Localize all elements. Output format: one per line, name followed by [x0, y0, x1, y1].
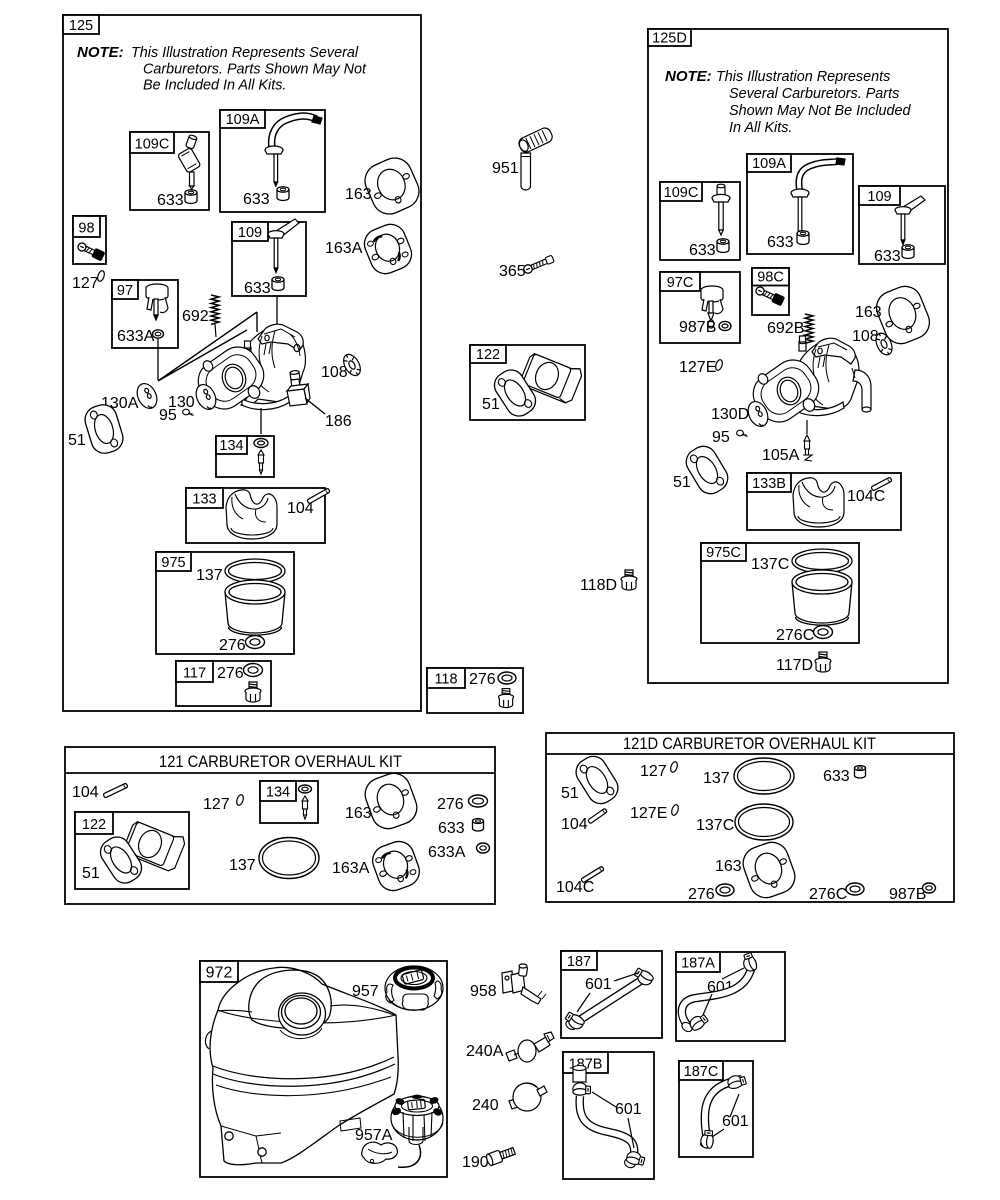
svg-text:51: 51 — [482, 396, 500, 413]
svg-text:51: 51 — [561, 785, 579, 802]
svg-text:951: 951 — [492, 160, 519, 177]
svg-text:109: 109 — [867, 189, 891, 205]
svg-text:633: 633 — [244, 280, 271, 297]
svg-text:104: 104 — [72, 784, 99, 801]
svg-text:108: 108 — [321, 364, 348, 381]
svg-text:137: 137 — [703, 770, 730, 787]
svg-text:137: 137 — [229, 857, 256, 874]
svg-text:Shown May Not Be Included: Shown May Not Be Included — [729, 103, 911, 119]
svg-text:975: 975 — [161, 555, 185, 571]
svg-text:163A: 163A — [325, 240, 363, 257]
svg-text:692: 692 — [182, 308, 209, 325]
svg-text:186: 186 — [325, 413, 352, 430]
svg-text:109C: 109C — [664, 185, 699, 201]
svg-text:125: 125 — [69, 18, 93, 34]
svg-text:130D: 130D — [711, 406, 749, 423]
svg-text:633: 633 — [874, 248, 901, 265]
svg-text:276: 276 — [217, 665, 244, 682]
svg-text:Several Carburetors. Parts: Several Carburetors. Parts — [729, 86, 900, 102]
svg-text:240: 240 — [472, 1097, 499, 1114]
svg-text:972: 972 — [206, 964, 233, 981]
svg-text:163A: 163A — [332, 860, 370, 877]
svg-text:365: 365 — [499, 263, 526, 280]
svg-text:127: 127 — [640, 763, 667, 780]
svg-text:95: 95 — [712, 429, 730, 446]
svg-text:51: 51 — [82, 865, 100, 882]
svg-text:633: 633 — [157, 192, 184, 209]
svg-text:276: 276 — [688, 886, 715, 903]
svg-text:187C: 187C — [684, 1064, 719, 1080]
svg-text:118: 118 — [434, 672, 457, 688]
svg-text:163: 163 — [855, 304, 882, 321]
svg-text:127: 127 — [203, 796, 230, 813]
svg-text:987B: 987B — [679, 319, 716, 336]
svg-text:137C: 137C — [696, 817, 734, 834]
svg-text:104C: 104C — [847, 488, 885, 505]
svg-text:134: 134 — [219, 438, 243, 454]
svg-text:240A: 240A — [466, 1043, 504, 1060]
svg-text:276C: 276C — [776, 627, 814, 644]
svg-text:163: 163 — [345, 186, 372, 203]
svg-text:957A: 957A — [355, 1127, 393, 1144]
svg-text:187: 187 — [567, 954, 591, 970]
svg-text:127E: 127E — [630, 805, 667, 822]
svg-text:137C: 137C — [751, 556, 789, 573]
svg-text:134: 134 — [266, 785, 290, 801]
svg-text:133B: 133B — [752, 476, 786, 492]
svg-text:692B: 692B — [767, 320, 804, 337]
svg-text:276: 276 — [469, 671, 496, 688]
svg-text:97: 97 — [117, 283, 133, 299]
svg-text:601: 601 — [722, 1113, 749, 1130]
svg-text:125D: 125D — [652, 30, 687, 46]
svg-text:276: 276 — [219, 637, 246, 654]
svg-text:NOTE:: NOTE: — [77, 44, 124, 61]
svg-text:109A: 109A — [226, 112, 260, 128]
svg-text:121D CARBURETOR OVERHAUL KIT: 121D CARBURETOR OVERHAUL KIT — [623, 734, 876, 753]
svg-text:117D: 117D — [776, 657, 813, 674]
svg-text:This Illustration Represents: This Illustration Represents — [716, 69, 891, 85]
svg-text:127: 127 — [72, 275, 99, 292]
svg-text:109A: 109A — [752, 156, 786, 172]
svg-text:121 CARBURETOR OVERHAUL KIT: 121 CARBURETOR OVERHAUL KIT — [159, 752, 402, 771]
svg-text:190: 190 — [462, 1154, 489, 1171]
svg-text:122: 122 — [82, 817, 106, 833]
svg-text:975C: 975C — [706, 545, 741, 561]
svg-text:109: 109 — [238, 225, 262, 241]
svg-text:137: 137 — [196, 567, 223, 584]
svg-text:This Illustration Represents S: This Illustration Represents Several — [131, 45, 359, 61]
svg-text:633: 633 — [823, 768, 850, 785]
svg-text:Be Included In All Kits.: Be Included In All Kits. — [143, 77, 286, 93]
svg-text:104C: 104C — [556, 879, 594, 896]
svg-text:958: 958 — [470, 983, 497, 1000]
svg-text:Carburetors. Parts Shown May N: Carburetors. Parts Shown May Not — [143, 61, 367, 77]
svg-text:633A: 633A — [117, 328, 155, 345]
svg-text:601: 601 — [615, 1101, 642, 1118]
svg-text:In All Kits.: In All Kits. — [729, 120, 792, 136]
svg-text:633: 633 — [438, 820, 465, 837]
svg-text:127E: 127E — [679, 359, 716, 376]
svg-text:98C: 98C — [757, 270, 784, 286]
svg-text:108: 108 — [852, 328, 879, 345]
svg-text:NOTE:: NOTE: — [665, 68, 712, 85]
svg-text:51: 51 — [673, 474, 691, 491]
svg-text:118D: 118D — [580, 577, 617, 594]
svg-text:105A: 105A — [762, 447, 800, 464]
svg-text:276: 276 — [437, 796, 464, 813]
svg-text:187A: 187A — [681, 956, 715, 972]
svg-text:104: 104 — [561, 816, 588, 833]
svg-text:98: 98 — [78, 220, 94, 236]
svg-text:601: 601 — [585, 976, 612, 993]
svg-text:633: 633 — [243, 191, 270, 208]
svg-text:122: 122 — [476, 347, 500, 363]
svg-text:987B: 987B — [889, 886, 926, 903]
svg-text:117: 117 — [183, 665, 206, 681]
svg-text:97C: 97C — [667, 275, 694, 291]
svg-text:163: 163 — [345, 805, 372, 822]
svg-text:633: 633 — [689, 242, 716, 259]
svg-text:109C: 109C — [135, 136, 170, 152]
svg-text:276C: 276C — [809, 886, 847, 903]
svg-text:95: 95 — [159, 407, 177, 424]
svg-text:163: 163 — [715, 858, 742, 875]
svg-text:133: 133 — [192, 492, 216, 508]
svg-text:633: 633 — [767, 234, 794, 251]
svg-text:957: 957 — [352, 983, 379, 1000]
svg-text:633A: 633A — [428, 844, 466, 861]
svg-text:51: 51 — [68, 432, 86, 449]
